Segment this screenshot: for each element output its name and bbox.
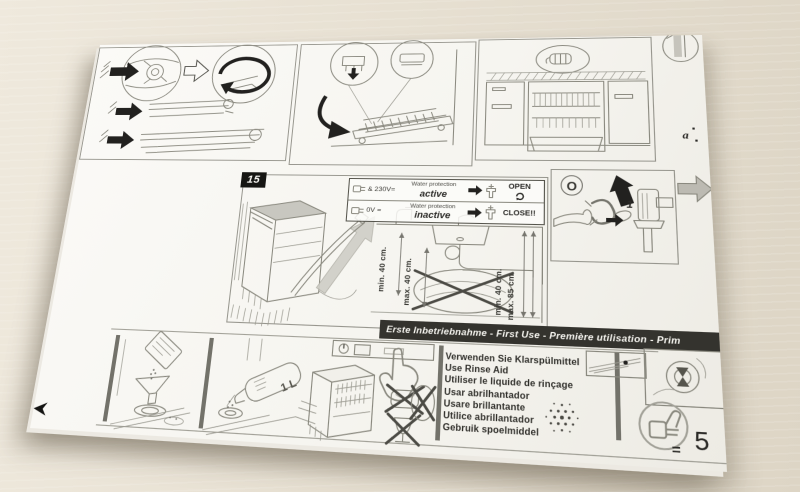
instruction-sheet: a	[30, 35, 727, 472]
step-number-badge: 15	[240, 172, 266, 188]
power-button	[354, 343, 371, 355]
dimension-right-min: min. 40 cm.	[492, 268, 503, 315]
photo-of-instruction-sheet: a	[0, 0, 800, 492]
panel-push-into-niche	[475, 37, 656, 162]
water-protection-row-inactive: 0V = Water protection inactive CLOSE!!	[347, 199, 544, 224]
fold-marker-icon	[32, 402, 47, 416]
water-protection-state: inactive	[399, 209, 465, 220]
corner-detail-circle	[651, 35, 704, 69]
corner-label-text: a	[682, 130, 689, 142]
tap-icon	[485, 206, 496, 220]
off-knob-symbol: O	[561, 175, 583, 196]
knob-letter: O	[566, 179, 577, 193]
curved-arrow-icon	[317, 96, 353, 139]
panel-drain-valve: O 1	[550, 169, 679, 265]
water-protection-row-active: & 230V= Water protection active OPEN	[348, 179, 544, 202]
basket-rails-detail	[587, 352, 643, 376]
wheel-mounting-illustration	[80, 45, 297, 159]
valve-step-number: 1	[626, 199, 633, 211]
tap-action-open: OPEN	[499, 181, 541, 191]
water-protection-label: Water protection	[400, 203, 466, 210]
page-number: 5	[694, 427, 710, 458]
plug-icon	[352, 184, 366, 194]
water-protection-box: & 230V= Water protection active OPEN	[346, 178, 545, 225]
thumbs-up-icon	[635, 397, 692, 454]
step-number: 15	[246, 174, 260, 186]
down-arrow-icon	[347, 68, 360, 80]
water-protection-state: active	[401, 188, 466, 199]
door-rack-illustration	[290, 42, 476, 164]
panel-door-rack	[289, 41, 477, 166]
rotate-open-icon	[514, 192, 524, 201]
footer-equals: =	[672, 441, 682, 459]
funnel-insert-detail	[645, 349, 722, 405]
power-icon	[337, 342, 350, 355]
cabinet-niche-illustration	[476, 38, 655, 160]
voltage-label: & 230V=	[368, 186, 400, 193]
arrow-right-icon	[468, 185, 483, 195]
tap-icon	[485, 184, 496, 197]
push-arrow-icon	[100, 61, 141, 81]
salt-fill-illustration	[108, 333, 206, 431]
voltage-label: 0V =	[366, 207, 398, 215]
corner-label-a: a	[682, 130, 689, 142]
water-protection-label: Water protection	[401, 181, 466, 188]
outline-arrow-icon	[183, 60, 210, 81]
arrow-right-icon	[467, 207, 483, 217]
plug-icon	[350, 205, 364, 215]
panel-step-15: 15 & 230V= Water protection active	[226, 174, 548, 335]
snowflake-icon	[545, 400, 579, 436]
push-arrow-icon	[98, 130, 135, 149]
basket-detail-box	[586, 350, 647, 378]
fist-icon	[546, 54, 571, 64]
push-arrow-icon	[107, 102, 144, 121]
tap-action-close: CLOSE!!	[498, 208, 540, 218]
next-page-arrow-icon	[677, 174, 714, 204]
panel-wheel-mounting	[79, 44, 298, 161]
rotate-arrow-icon	[217, 58, 270, 94]
dimension-right-max: max. 85 cm.	[505, 271, 516, 320]
crossed-oval-icon	[408, 381, 438, 424]
open-dishwasher-illustration	[301, 354, 378, 440]
